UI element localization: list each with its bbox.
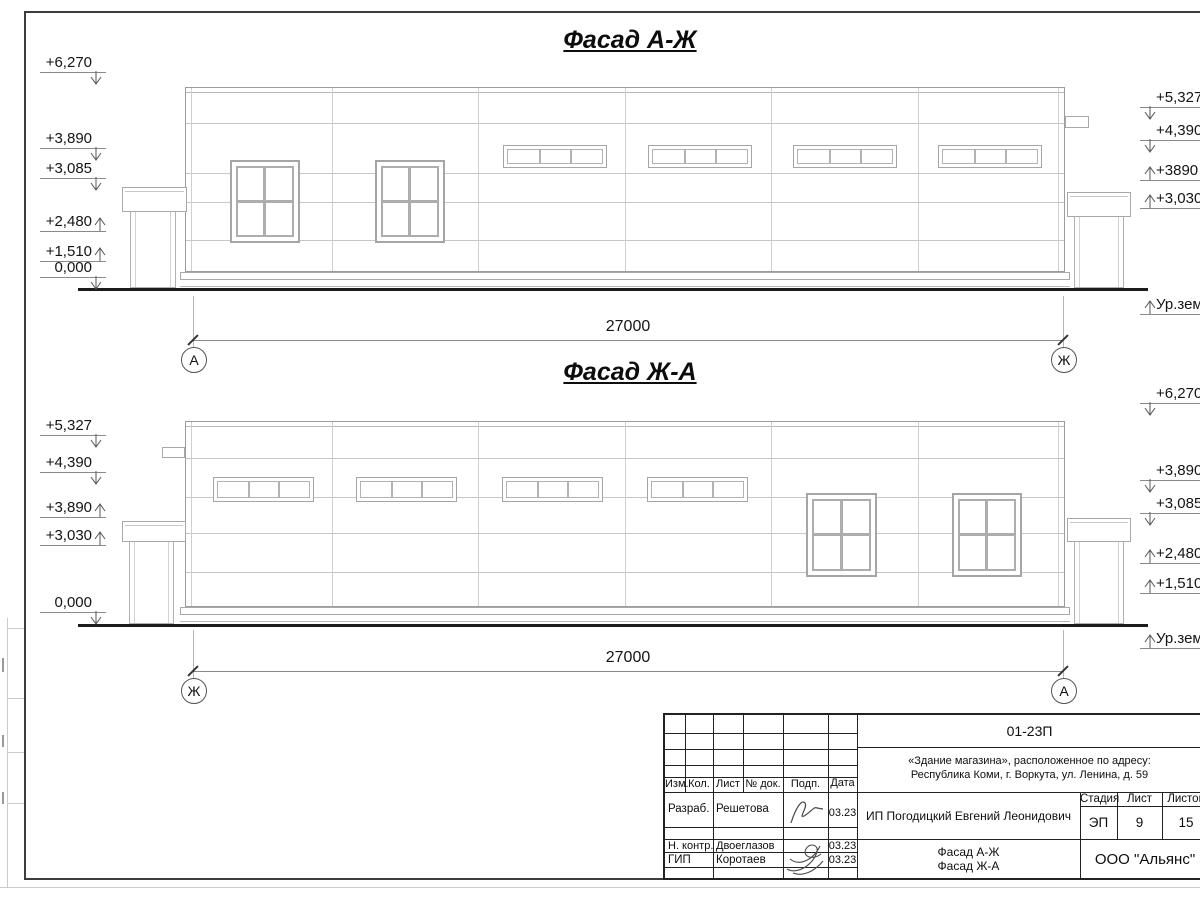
elevation-arrow-down-icon [1142, 479, 1158, 493]
window-mullion [715, 150, 717, 163]
elevation-label: +6,270 [1140, 385, 1200, 402]
elevation-label: +3,085 [40, 160, 106, 177]
panel-joint-line [625, 88, 626, 271]
window-strip [503, 145, 607, 168]
elevation-mark: 0,000 [40, 259, 106, 278]
frame-top-border [24, 11, 1200, 13]
extension-line [1063, 630, 1064, 684]
window-frame [217, 481, 310, 498]
window-strip [647, 477, 748, 502]
elevation-mark: +3,030 [40, 527, 106, 546]
window-mullion [539, 150, 541, 163]
window-frame [958, 499, 1016, 571]
client-name: ИП Погодицкий Евгений Леонидович [857, 809, 1080, 823]
window-mullion [421, 482, 423, 497]
col-header-kol: Кол. [685, 778, 713, 790]
window-mullion [1005, 150, 1007, 163]
window-frame [812, 499, 871, 571]
elevation-arrow-up-icon [1142, 579, 1158, 593]
window-mullion [860, 150, 862, 163]
window-mullion [383, 200, 437, 203]
project-address-line2: Республика Коми, г. Воркута, ул. Ленина,… [857, 769, 1200, 781]
elevation-mark: 0,000 [40, 594, 106, 613]
corner-line [191, 88, 192, 271]
porch-column-line [1079, 217, 1080, 287]
title-block-line [713, 715, 714, 878]
porch-column-line [170, 212, 171, 287]
elevation-label: +4,390 [40, 454, 106, 471]
elevation-arrow-up-icon [1142, 194, 1158, 208]
elevation-mark: +6,270 [40, 54, 106, 73]
elevation-mark: +1,510 [1140, 575, 1200, 594]
window-frame [652, 149, 748, 164]
elevation-mark: +4,390 [1140, 122, 1200, 141]
row-role: ГИП [668, 854, 713, 866]
canopy-line [125, 525, 183, 526]
margin-divider [7, 752, 24, 753]
title-block-line [665, 827, 857, 828]
drawing-title-line1: Фасад А-Ж [857, 845, 1080, 859]
col-header-doc: № док. [743, 778, 783, 790]
plinth-band [180, 272, 1070, 280]
elevation-arrow-down-icon [1142, 512, 1158, 526]
stage-header: Стадия [1080, 793, 1117, 805]
elevation-mark: +5,327 [1140, 89, 1200, 108]
illegible-margin-mark [2, 735, 4, 747]
col-header-podp: Подп. [783, 778, 828, 790]
window-mullion [814, 533, 869, 536]
panel-joint-line [332, 88, 333, 271]
window-mullion [570, 150, 572, 163]
window-frame [360, 481, 453, 498]
dimension-line [193, 671, 1063, 672]
panel-joint-line [625, 422, 626, 606]
elevation-arrow-up-icon [1142, 166, 1158, 180]
plinth-line [180, 286, 1070, 287]
porch-column-line [134, 542, 135, 623]
elevation-arrow-up-icon [1142, 634, 1158, 648]
elevation-label: +6,270 [40, 54, 106, 71]
elevation-label: +5,327 [40, 417, 106, 434]
elevation-mark: +2,480 [40, 213, 106, 232]
corner-line [1058, 422, 1059, 606]
margin-divider [7, 803, 24, 804]
sheets-total-value: 15 [1162, 815, 1200, 830]
elevation-label: 0,000 [40, 259, 106, 276]
window-strip [938, 145, 1042, 168]
elevation-arrow-up-icon [92, 503, 108, 517]
window-frame [797, 149, 893, 164]
window-strip [213, 477, 314, 502]
elevation-label: +4,390 [1140, 122, 1200, 139]
elevation-mark: +6,270 [1140, 385, 1200, 404]
porch-wall [129, 542, 174, 624]
window-mullion [712, 482, 714, 497]
window-mullion [684, 150, 686, 163]
corner-line [1058, 88, 1059, 271]
elevation-mark: +3890 [1140, 162, 1200, 181]
frame-left-border [24, 11, 26, 880]
row-date: 03.23 [828, 854, 857, 866]
elevation-label: 0,000 [40, 594, 106, 611]
elevation-arrow-down-icon [88, 276, 104, 290]
window-mullion [829, 150, 831, 163]
panel-joint-line [332, 422, 333, 606]
project-code: 01-23П [857, 723, 1200, 739]
col-header-izm: Изм. [665, 778, 685, 790]
window-strip [648, 145, 752, 168]
margin-divider [7, 628, 24, 629]
canopy-line [1070, 196, 1128, 197]
window-strip [356, 477, 457, 502]
porch-wall [1074, 217, 1124, 288]
elevation-mark: +5,327 [40, 417, 106, 436]
elevation-mark: +4,390 [40, 454, 106, 473]
extension-line [1063, 296, 1064, 352]
canopy-line [125, 191, 184, 192]
elevation-label: +3,890 [1140, 462, 1200, 479]
panel-joint-line [478, 88, 479, 271]
ground-level-mark: Ур.зем. [1140, 630, 1200, 649]
porch-canopy [122, 521, 186, 542]
porch-column-line [168, 542, 169, 623]
elevation-arrow-down-icon [1142, 402, 1158, 416]
col-header-list: Лист [713, 778, 743, 790]
signature-icon [781, 837, 829, 879]
facade-2-title: Фасад Ж-А [460, 358, 800, 387]
title-block: Изм. Кол. Лист № док. Подп. Дата 01-23П … [663, 713, 1200, 880]
canopy-line [1070, 522, 1128, 523]
elevation-arrow-down-icon [1142, 106, 1158, 120]
axis-bubble-a: А [1051, 678, 1077, 704]
illegible-margin-mark [2, 792, 4, 804]
row-name: Двоеглазов [716, 840, 782, 852]
panel-joint-line [771, 88, 772, 271]
panel-joint-line [771, 422, 772, 606]
col-header-data: Дата [828, 777, 857, 789]
dimension-value: 27000 [543, 318, 713, 336]
elevation-mark: +3,030 [1140, 190, 1200, 209]
window-square [806, 493, 877, 577]
porch-wall [130, 212, 176, 288]
ground-line [78, 288, 1148, 291]
drawing-title-line2: Фасад Ж-А [857, 859, 1080, 873]
window-frame [381, 166, 439, 237]
sheet-number-value: 9 [1117, 815, 1162, 830]
panel-joint-line [478, 422, 479, 606]
extension-line [193, 630, 194, 684]
plinth-line [180, 621, 1070, 622]
dimension-value: 27000 [543, 649, 713, 667]
elevation-mark: +3,890 [40, 130, 106, 149]
roof-ledge [1065, 116, 1089, 128]
row-name: Решетова [716, 803, 782, 815]
window-square [952, 493, 1022, 577]
window-mullion [537, 482, 539, 497]
elevation-arrow-up-icon [92, 531, 108, 545]
roof-ledge [162, 447, 185, 458]
row-role: Н. контр. [668, 840, 713, 852]
row-role: Разраб. [668, 803, 713, 815]
window-square [375, 160, 445, 243]
stage-value: ЭП [1080, 815, 1117, 830]
elevation-mark: +3,085 [1140, 495, 1200, 514]
drawing-sheet: Фасад А-Ж [0, 0, 1200, 900]
window-frame [942, 149, 1038, 164]
porch-wall [1074, 542, 1124, 624]
elevation-mark: +3,085 [40, 160, 106, 179]
plinth-band [180, 607, 1070, 615]
window-mullion [278, 482, 280, 497]
elevation-arrow-up-icon [1142, 300, 1158, 314]
window-strip [502, 477, 603, 502]
row-date: 03.23 [828, 807, 857, 819]
elevation-arrow-down-icon [88, 611, 104, 625]
company-name: ООО "Альянс" [1080, 851, 1200, 868]
window-mullion [248, 482, 250, 497]
elevation-arrow-down-icon [88, 177, 104, 191]
row-name: Коротаев [716, 854, 782, 866]
elevation-label: +3,085 [1140, 495, 1200, 512]
window-mullion [960, 533, 1014, 536]
elevation-arrow-down-icon [88, 434, 104, 448]
window-mullion [391, 482, 393, 497]
porch-canopy [1067, 192, 1131, 217]
elevation-label: +5,327 [1140, 89, 1200, 106]
elevation-arrow-down-icon [88, 147, 104, 161]
window-mullion [682, 482, 684, 497]
elevation-mark: +3,890 [1140, 462, 1200, 481]
title-block-line [665, 765, 857, 766]
ground-line [78, 624, 1148, 627]
elevation-mark: +3,890 [40, 499, 106, 518]
title-block-line [857, 747, 1200, 748]
porch-column-line [135, 212, 136, 287]
margin-divider [7, 698, 24, 699]
sheets-total-header: Листов [1162, 793, 1200, 805]
window-frame [506, 481, 599, 498]
window-mullion [567, 482, 569, 497]
signature-icon [783, 795, 828, 829]
row-date: 03.23 [828, 840, 857, 852]
elevation-mark: +2,480 [1140, 545, 1200, 564]
sheet-outer-edge [0, 887, 1200, 888]
panel-joint-line [918, 88, 919, 271]
porch-canopy [122, 187, 187, 212]
dimension-line [193, 340, 1063, 341]
window-frame [651, 481, 744, 498]
ground-level-mark: Ур.зем. [1140, 296, 1200, 315]
panel-joint-line [918, 422, 919, 606]
project-address-line1: «Здание магазина», расположенное по адре… [857, 755, 1200, 767]
elevation-arrow-up-icon [1142, 549, 1158, 563]
window-frame [507, 149, 603, 164]
window-frame [236, 166, 294, 237]
elevation-arrow-up-icon [92, 217, 108, 231]
window-square [230, 160, 300, 243]
sheet-header: Лист [1117, 793, 1162, 805]
title-block-line [665, 749, 857, 750]
porch-column-line [1079, 542, 1080, 623]
elevation-label: +3,890 [40, 130, 106, 147]
axis-bubble-zh: Ж [181, 678, 207, 704]
porch-column-line [1118, 217, 1119, 287]
illegible-margin-mark [2, 658, 4, 672]
elevation-arrow-down-icon [1142, 139, 1158, 153]
axis-bubble-zh: Ж [1051, 347, 1077, 373]
porch-column-line [1118, 542, 1119, 623]
facade-1-title: Фасад А-Ж [460, 26, 800, 55]
corner-line [191, 422, 192, 606]
window-mullion [238, 200, 292, 203]
extension-line [193, 296, 194, 352]
title-block-line [665, 733, 857, 734]
window-mullion [974, 150, 976, 163]
elevation-arrow-down-icon [88, 471, 104, 485]
elevation-arrow-down-icon [88, 71, 104, 85]
axis-bubble-a: А [181, 347, 207, 373]
title-block-line [1080, 806, 1200, 807]
porch-canopy [1067, 518, 1131, 542]
window-strip [793, 145, 897, 168]
